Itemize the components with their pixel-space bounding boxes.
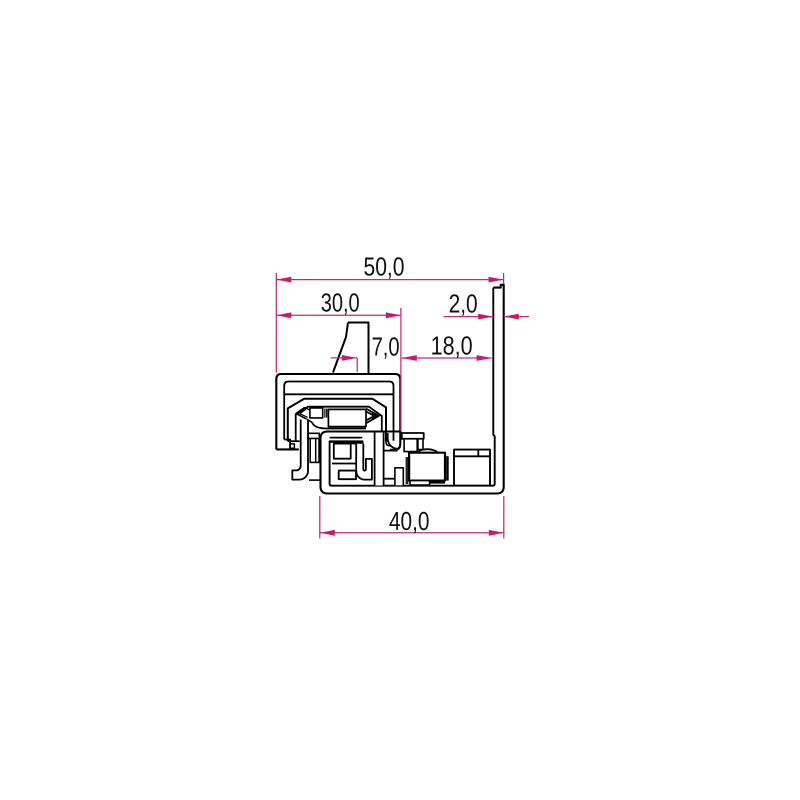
svg-text:7,0: 7,0: [372, 332, 400, 362]
svg-text:2,0: 2,0: [449, 289, 478, 319]
svg-text:50,0: 50,0: [364, 251, 405, 281]
svg-text:40,0: 40,0: [389, 506, 430, 536]
svg-text:30,0: 30,0: [321, 287, 360, 317]
svg-text:18,0: 18,0: [431, 330, 473, 360]
